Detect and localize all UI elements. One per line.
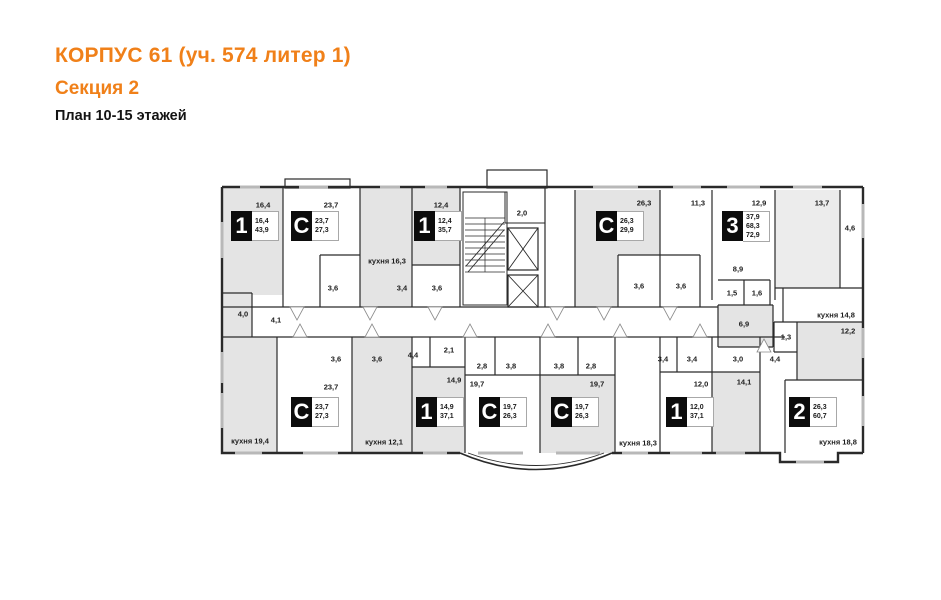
area-line: 27,3 [315,412,335,421]
apartment-areas: 12,0 37,1 [687,397,714,427]
room-area-label: 11,3 [691,199,705,208]
apartment-badge: С 19,7 26,3 [479,397,527,427]
kitchen-label: кухня 14,8 [817,311,855,320]
area-line: 12,0 [690,403,710,412]
room-area-label: 2,1 [444,346,454,355]
room-area-label: 16,4 [256,201,271,210]
area-line: 37,1 [690,412,710,421]
room-area-label: 3,6 [432,284,442,293]
area-line: 35,7 [438,226,458,235]
room-area-label: 12,9 [752,199,767,208]
apartment-badge: С 19,7 26,3 [551,397,599,427]
apartment-type-label: С [596,211,617,241]
room-area-label: 3,8 [506,362,516,371]
room-area-label: 3,6 [634,282,644,291]
apartment-badge: 3 37,9 68,3 72,9 [722,211,770,242]
area-line: 23,7 [315,217,335,226]
apartment-badge: С 23,7 27,3 [291,397,339,427]
area-line: 19,7 [575,403,595,412]
apartment-type-label: С [291,211,312,241]
area-line: 26,3 [813,403,833,412]
room-area-label: 12,2 [841,327,856,336]
apartment-areas: 23,7 27,3 [312,397,339,427]
apartment-areas: 37,9 68,3 72,9 [743,211,770,242]
room-area-label: 26,3 [637,199,652,208]
room-area-label: 2,8 [477,362,487,371]
apartment-areas: 26,3 60,7 [810,397,837,427]
room-area-label: 3,6 [328,284,338,293]
room-area-label: 1,5 [727,289,737,298]
apartment-type-label: 3 [722,211,743,241]
kitchen-label: кухня 12,1 [365,438,403,447]
kitchen-label: кухня 19,4 [231,437,269,446]
top-balconies [285,170,547,188]
room-area-label: 2,8 [586,362,596,371]
apartment-badge: С 23,7 27,3 [291,211,339,241]
room-area-label: 1,3 [781,333,791,342]
room-area-label: 4,4 [408,351,418,360]
apartment-type-label: 1 [414,211,435,241]
area-line: 37,9 [746,213,766,222]
floorplan-drawing [0,0,941,600]
area-line: 37,1 [440,412,460,421]
apartment-areas: 19,7 26,3 [500,397,527,427]
room-area-label: 4,4 [770,355,780,364]
room-area-label: 3,0 [733,355,743,364]
curved-balcony [460,453,612,470]
room-area-label: 3,4 [687,355,697,364]
kitchen-label: кухня 16,3 [368,257,406,266]
room-area-label: 14,9 [447,376,462,385]
room-area-label: 12,4 [434,201,449,210]
area-line: 72,9 [746,231,766,240]
apartment-badge: 1 12,0 37,1 [666,397,714,427]
apartment-type-label: С [291,397,312,427]
room-area-label: 3,6 [331,355,341,364]
apartment-type-label: 2 [789,397,810,427]
apartment-type-label: С [551,397,572,427]
room-area-label: 12,0 [694,380,709,389]
area-line: 43,9 [255,226,275,235]
apartment-areas: 14,9 37,1 [437,397,464,427]
apartment-type-label: С [479,397,500,427]
kitchen-label: кухня 18,8 [819,438,857,447]
room-area-label: 19,7 [470,380,485,389]
room-area-label: 3,6 [676,282,686,291]
elevator-shaft [508,228,538,307]
apartment-badge: С 26,3 29,9 [596,211,644,241]
room-area-label: 3,8 [554,362,564,371]
area-line: 26,3 [620,217,640,226]
room-area-label: 3,4 [658,355,668,364]
area-line: 19,7 [503,403,523,412]
apartment-badge: 1 16,4 43,9 [231,211,279,241]
apartment-areas: 19,7 26,3 [572,397,599,427]
room-area-label: 14,1 [737,378,752,387]
apartment-badge: 2 26,3 60,7 [789,397,837,427]
apartment-type-label: 1 [666,397,687,427]
elevator-lobby-wall [505,192,545,223]
apartment-areas: 23,7 27,3 [312,211,339,241]
apartment-badge: 1 14,9 37,1 [416,397,464,427]
room-area-label: 4,1 [271,316,281,325]
room-area-label: 6,9 [739,320,749,329]
area-line: 26,3 [575,412,595,421]
apartment-areas: 26,3 29,9 [617,211,644,241]
room-area-label: 23,7 [324,201,339,210]
kitchen-label: кухня 18,3 [619,439,657,448]
area-line: 60,7 [813,412,833,421]
apartment-type-label: 1 [416,397,437,427]
area-line: 26,3 [503,412,523,421]
apartment-badge: 1 12,4 35,7 [414,211,462,241]
area-line: 16,4 [255,217,275,226]
area-line: 68,3 [746,222,766,231]
stairs [463,192,507,305]
room-area-label: 3,4 [397,284,407,293]
room-area-label: 1,6 [752,289,762,298]
area-line: 23,7 [315,403,335,412]
room-area-label: 19,7 [590,380,605,389]
area-line: 12,4 [438,217,458,226]
room-area-label: 4,6 [845,224,855,233]
area-line: 27,3 [315,226,335,235]
room-area-label: 3,6 [372,355,382,364]
room-area-label: 4,0 [238,310,248,319]
apartment-areas: 12,4 35,7 [435,211,462,241]
apartment-areas: 16,4 43,9 [252,211,279,241]
room-area-label: 13,7 [815,199,830,208]
apartment-type-label: 1 [231,211,252,241]
room-area-label: 2,0 [517,209,527,218]
room-area-label: 8,9 [733,265,743,274]
room-area-label: 23,7 [324,383,339,392]
area-line: 29,9 [620,226,640,235]
area-line: 14,9 [440,403,460,412]
